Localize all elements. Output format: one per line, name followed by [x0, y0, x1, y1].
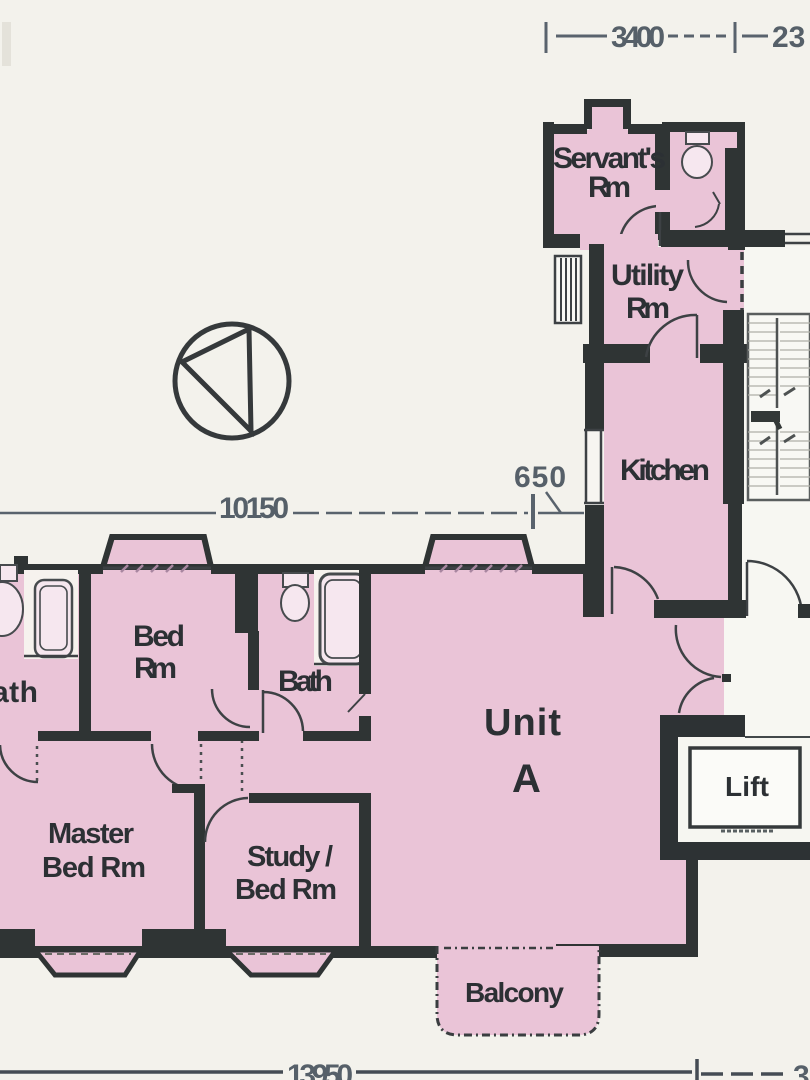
svg-text:Rm: Rm — [134, 652, 177, 685]
svg-text:Master: Master — [48, 818, 134, 850]
svg-text:ath: ath — [0, 676, 38, 709]
svg-text:Bed Rm: Bed Rm — [42, 852, 146, 884]
svg-text:Balcony: Balcony — [465, 977, 564, 1008]
svg-text:Unit: Unit — [484, 702, 561, 744]
svg-text:Rm: Rm — [626, 292, 670, 325]
svg-text:Bed Rm: Bed Rm — [235, 874, 337, 906]
svg-text:650: 650 — [514, 461, 566, 494]
svg-text:Rm: Rm — [588, 171, 631, 204]
svg-text:Bath: Bath — [278, 665, 333, 698]
svg-text:3400: 3400 — [611, 21, 665, 54]
svg-text:Study /: Study / — [247, 841, 333, 873]
svg-text:13950: 13950 — [287, 1059, 353, 1080]
svg-text:23: 23 — [772, 21, 805, 54]
svg-text:Utility: Utility — [611, 259, 684, 292]
svg-text:Bed: Bed — [133, 620, 185, 653]
svg-text:35: 35 — [793, 1060, 810, 1080]
svg-text:Kitchen: Kitchen — [620, 454, 710, 487]
svg-text:A: A — [512, 757, 541, 801]
svg-text:Lift: Lift — [725, 771, 769, 802]
svg-text:10150: 10150 — [219, 492, 289, 525]
